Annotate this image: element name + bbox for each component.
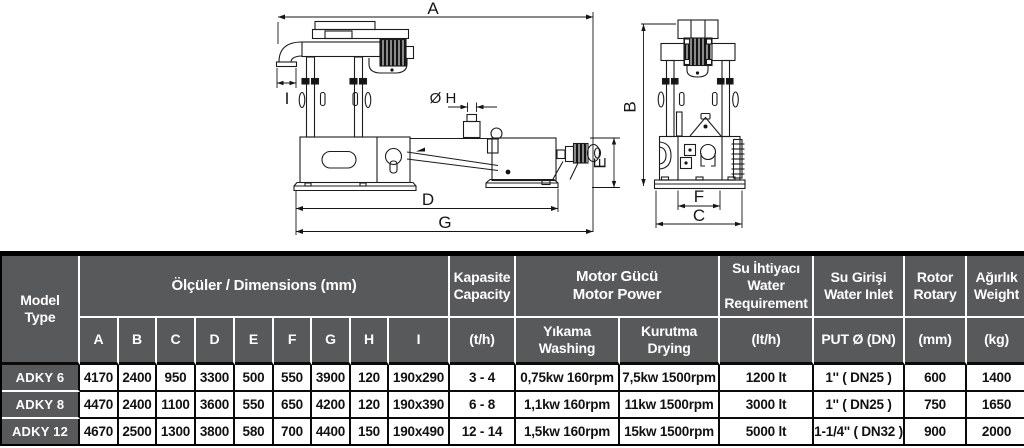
dim-h-cell: 150	[351, 419, 389, 444]
top-plate	[315, 22, 375, 30]
header-rotor: Rotor Rotary	[905, 256, 967, 318]
dim-f-cell: 650	[274, 392, 312, 419]
dim-d-cell: 3600	[196, 392, 235, 419]
spec-table: Model Type Ölçüler / Dimensions (mm) Kap…	[2, 256, 1024, 444]
dim-label-h: Ø H	[430, 90, 457, 107]
dim-h-cell: 120	[351, 365, 389, 392]
header-dim-c: C	[157, 318, 196, 365]
header-dim-f: F	[274, 318, 312, 365]
water-cell: 5000 lt	[720, 419, 814, 444]
dim-c-cell: 950	[157, 365, 196, 392]
drying-motor-cell: 11kw 1500rpm	[620, 392, 720, 419]
table-row: ADKY 64170240095033005005503900120190x29…	[2, 365, 1024, 392]
header-capacity: Kapasite Capacity	[450, 256, 516, 318]
dim-e-cell: 580	[235, 419, 274, 444]
dim-h-cell: 120	[351, 392, 389, 419]
dim-label-g: G	[438, 213, 451, 232]
dim-label-d: D	[422, 190, 434, 209]
header-model-type: Model Type	[2, 256, 80, 365]
header-dimensions: Ölçüler / Dimensions (mm)	[80, 256, 450, 318]
header-drying: Kurutma Drying	[620, 318, 720, 365]
dim-b-cell: 2400	[119, 392, 157, 419]
dimension-diagram: A I Ø H E	[0, 0, 1024, 252]
dim-f-cell: 700	[274, 419, 312, 444]
dim-label-b: B	[621, 101, 640, 112]
header-dim-e: E	[235, 318, 274, 365]
side-lower-box	[660, 137, 745, 181]
side-top-box	[678, 20, 718, 39]
dim-a-cell: 4670	[80, 419, 119, 444]
dim-d-cell: 3300	[196, 365, 235, 392]
drying-motor-cell: 15kw 1500rpm	[620, 419, 720, 444]
dim-label-a: A	[427, 0, 439, 18]
dim-b-cell: 2400	[119, 365, 157, 392]
water-cell: 1200 lt	[720, 365, 814, 392]
header-water-unit: (lt/h)	[720, 318, 814, 365]
dim-label-c: C	[693, 206, 705, 225]
dim-b-cell: 2500	[119, 419, 157, 444]
header-dim-d: D	[196, 318, 235, 365]
model-cell: ADKY 6	[2, 365, 80, 392]
dim-e-cell: 550	[235, 392, 274, 419]
dim-e-cell: 500	[235, 365, 274, 392]
dim-label-e: E	[591, 157, 610, 168]
side-view	[655, 20, 746, 189]
washing-motor-cell: 1,5kw 160rpm	[516, 419, 620, 444]
weight-cell: 1650	[967, 392, 1024, 419]
side-hopper	[677, 112, 722, 136]
dim-g-cell: 4200	[312, 392, 351, 419]
washing-motor-cell: 0,75kw 160rpm	[516, 365, 620, 392]
rotor-cell: 750	[905, 392, 967, 419]
header-capacity-unit: (t/h)	[450, 318, 516, 365]
spec-sheet: A I Ø H E	[0, 0, 1024, 448]
header-weight: Ağırlık Weight	[967, 256, 1024, 318]
table-row: ADKY 1246702500130038005807004400150190x…	[2, 419, 1024, 444]
dim-a-cell: 4470	[80, 392, 119, 419]
table-row: ADKY 844702400110036005506504200120190x3…	[2, 392, 1024, 419]
dim-g-cell: 3900	[312, 365, 351, 392]
dim-c-cell: 1300	[157, 419, 196, 444]
washing-trough	[407, 139, 498, 171]
rotor-cell: 600	[905, 365, 967, 392]
base-plate-left	[294, 183, 416, 191]
header-dim-a: A	[80, 318, 119, 365]
header-motor-power: Motor Gücü Motor Power	[516, 256, 720, 318]
dim-a-cell: 4170	[80, 365, 119, 392]
model-cell: ADKY 8	[2, 392, 80, 419]
dim-label-i: I	[285, 89, 290, 108]
spec-table-body: ADKY 64170240095033005005503900120190x29…	[2, 365, 1024, 444]
inlet-elbow-pipe	[277, 42, 303, 67]
dim-g-cell: 4400	[312, 419, 351, 444]
dim-i-cell: 190x490	[389, 419, 450, 444]
header-dim-b: B	[119, 318, 157, 365]
rotor-cell: 900	[905, 419, 967, 444]
dim-i-cell: 190x290	[389, 365, 450, 392]
header-inlet-unit: PUT Ø (DN)	[814, 318, 905, 365]
weight-cell: 2000	[967, 419, 1024, 444]
spec-table-wrapper: Model Type Ölçüler / Dimensions (mm) Kap…	[0, 251, 1024, 446]
weight-cell: 1400	[967, 365, 1024, 392]
dim-c-cell: 1100	[157, 392, 196, 419]
water-inlet-pipe	[464, 115, 503, 154]
header-rotor-unit: (mm)	[905, 318, 967, 365]
drying-motor-cell: 7,5kw 1500rpm	[620, 365, 720, 392]
capacity-cell: 3 - 4	[450, 365, 516, 392]
dimension-annotations: A I Ø H E	[277, 0, 742, 235]
drive-box	[492, 138, 556, 181]
dim-f-cell: 550	[274, 365, 312, 392]
inlet-cell: 1'' ( DN25 )	[814, 392, 905, 419]
support-legs	[299, 57, 371, 137]
water-cell: 3000 lt	[720, 392, 814, 419]
inlet-cell: 1-1/4'' ( DN32 )	[814, 419, 905, 444]
header-weight-unit: (kg)	[967, 318, 1024, 365]
fan-duct	[302, 42, 380, 57]
dim-label-f: F	[694, 187, 704, 206]
header-dim-i: I	[389, 318, 450, 365]
capacity-cell: 6 - 8	[450, 392, 516, 419]
header-dim-g: G	[312, 318, 351, 365]
machine-body	[300, 137, 410, 183]
capacity-cell: 12 - 14	[450, 419, 516, 444]
dim-i-cell: 190x390	[389, 392, 450, 419]
header-water-inlet: Su Girişi Water Inlet	[814, 256, 905, 318]
dim-d-cell: 3800	[196, 419, 235, 444]
inlet-cell: 1'' ( DN25 )	[814, 365, 905, 392]
model-cell: ADKY 12	[2, 419, 80, 444]
side-motor	[684, 38, 712, 77]
washing-motor-cell: 1,1kw 160rpm	[516, 392, 620, 419]
header-dim-h: H	[351, 318, 389, 365]
header-washing: Yıkama Washing	[516, 318, 620, 365]
header-water-requirement: Su İhtiyacı Water Requirement	[720, 256, 814, 318]
